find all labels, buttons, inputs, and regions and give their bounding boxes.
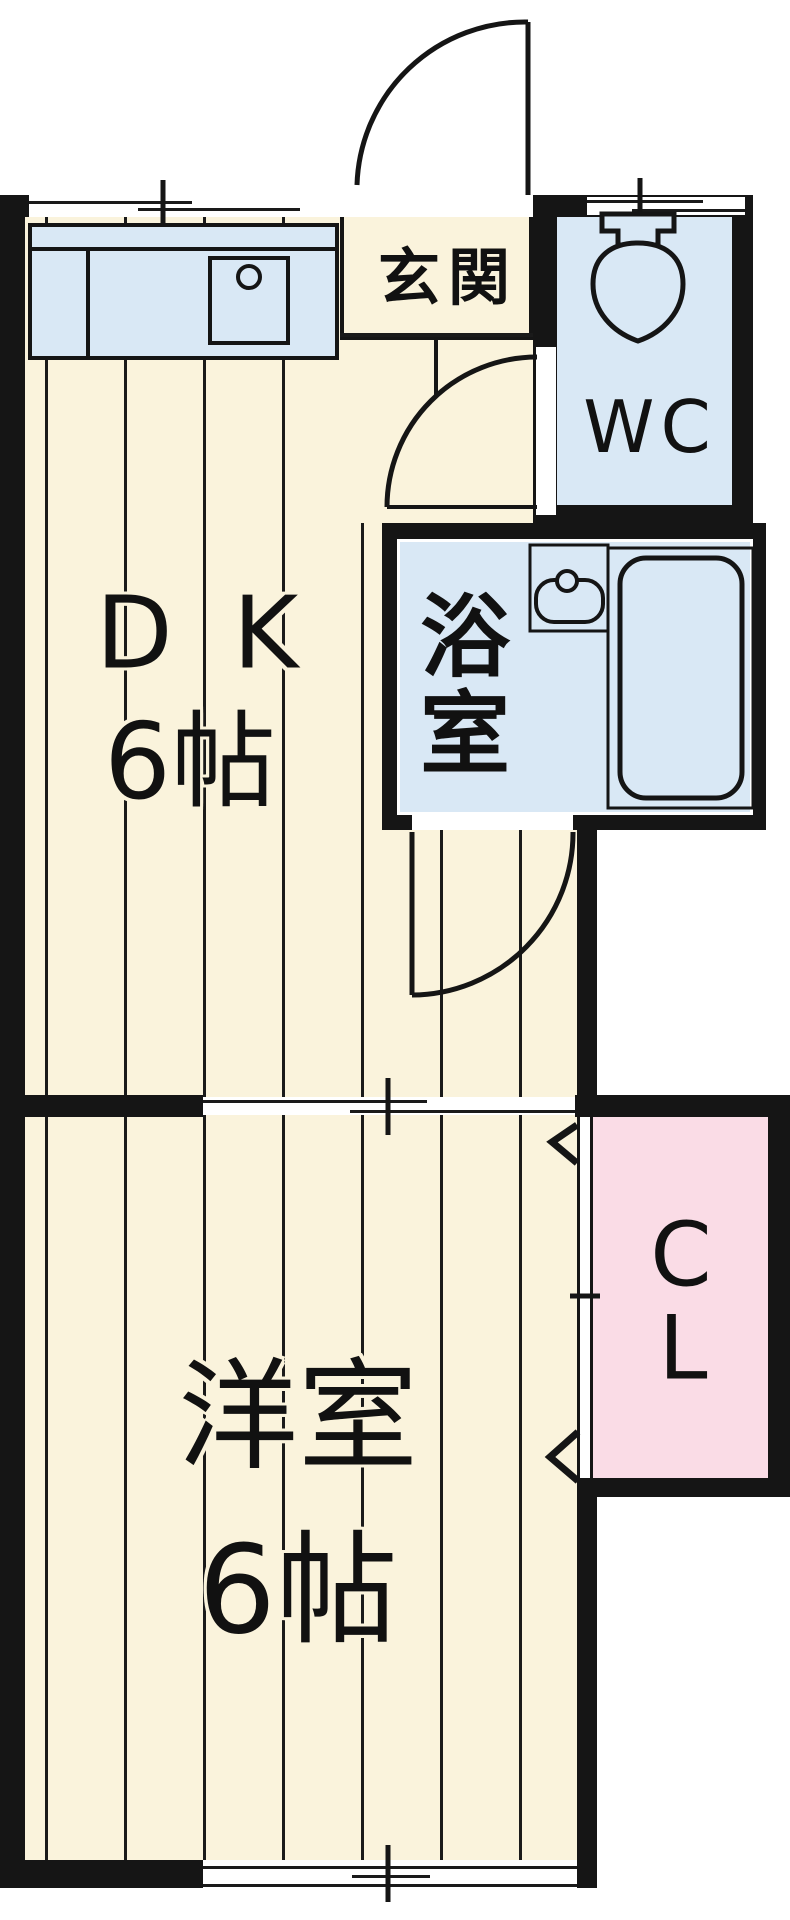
closet-right-wall (768, 1095, 790, 1497)
sliding-partition-line-a (203, 1100, 427, 1103)
floorplan: 玄関 WC 浴 室 DK 6帖 洋室 6帖 C L (0, 0, 790, 1920)
western-label-line2: 6帖 (198, 1492, 398, 1669)
bath-door-opening (412, 812, 573, 830)
bottom-window-line-a (203, 1866, 577, 1869)
wc-label: WC (583, 385, 716, 469)
hall-floor-patch (340, 322, 537, 523)
bottom-window-line-c (203, 1884, 577, 1887)
entrance-label: 玄関 (378, 227, 518, 317)
left-wall (0, 195, 25, 1888)
top-wall-mid (533, 195, 587, 217)
kitchen-window-line-b (138, 208, 300, 211)
closet-folding-door (577, 1117, 593, 1478)
bottom-wall-left (0, 1860, 203, 1888)
wc-window-line-a (587, 200, 703, 203)
kitchen-window-line-a (29, 201, 192, 204)
wc-door (536, 347, 556, 515)
western-label-line1: 洋室 (178, 1319, 418, 1493)
dk-label-line1: DK (96, 575, 359, 692)
sliding-partition-line-b (350, 1110, 577, 1113)
bottom-window-line-b (352, 1875, 430, 1878)
closet-bottom-wall (577, 1478, 790, 1497)
entrance-door-arc (357, 22, 528, 185)
western-right-wall (577, 1497, 597, 1888)
closet-label-line1: C (650, 1204, 711, 1307)
kitchen-window (29, 197, 300, 215)
closet-top-wall (575, 1095, 790, 1117)
top-wall-left-corner (0, 195, 29, 217)
outside-notch (597, 830, 790, 1095)
wc-window-line-b (632, 209, 745, 212)
closet-label-line2: L (658, 1297, 707, 1400)
divider-wall (0, 1095, 203, 1117)
dk-right-wall (577, 830, 597, 1097)
entrance-opening (300, 195, 533, 217)
entrance-step-line (340, 333, 533, 337)
dk-label-line2: 6帖 (104, 677, 276, 829)
bath-label-line2: 室 (420, 661, 510, 791)
top-wall-right-corner (745, 195, 753, 217)
